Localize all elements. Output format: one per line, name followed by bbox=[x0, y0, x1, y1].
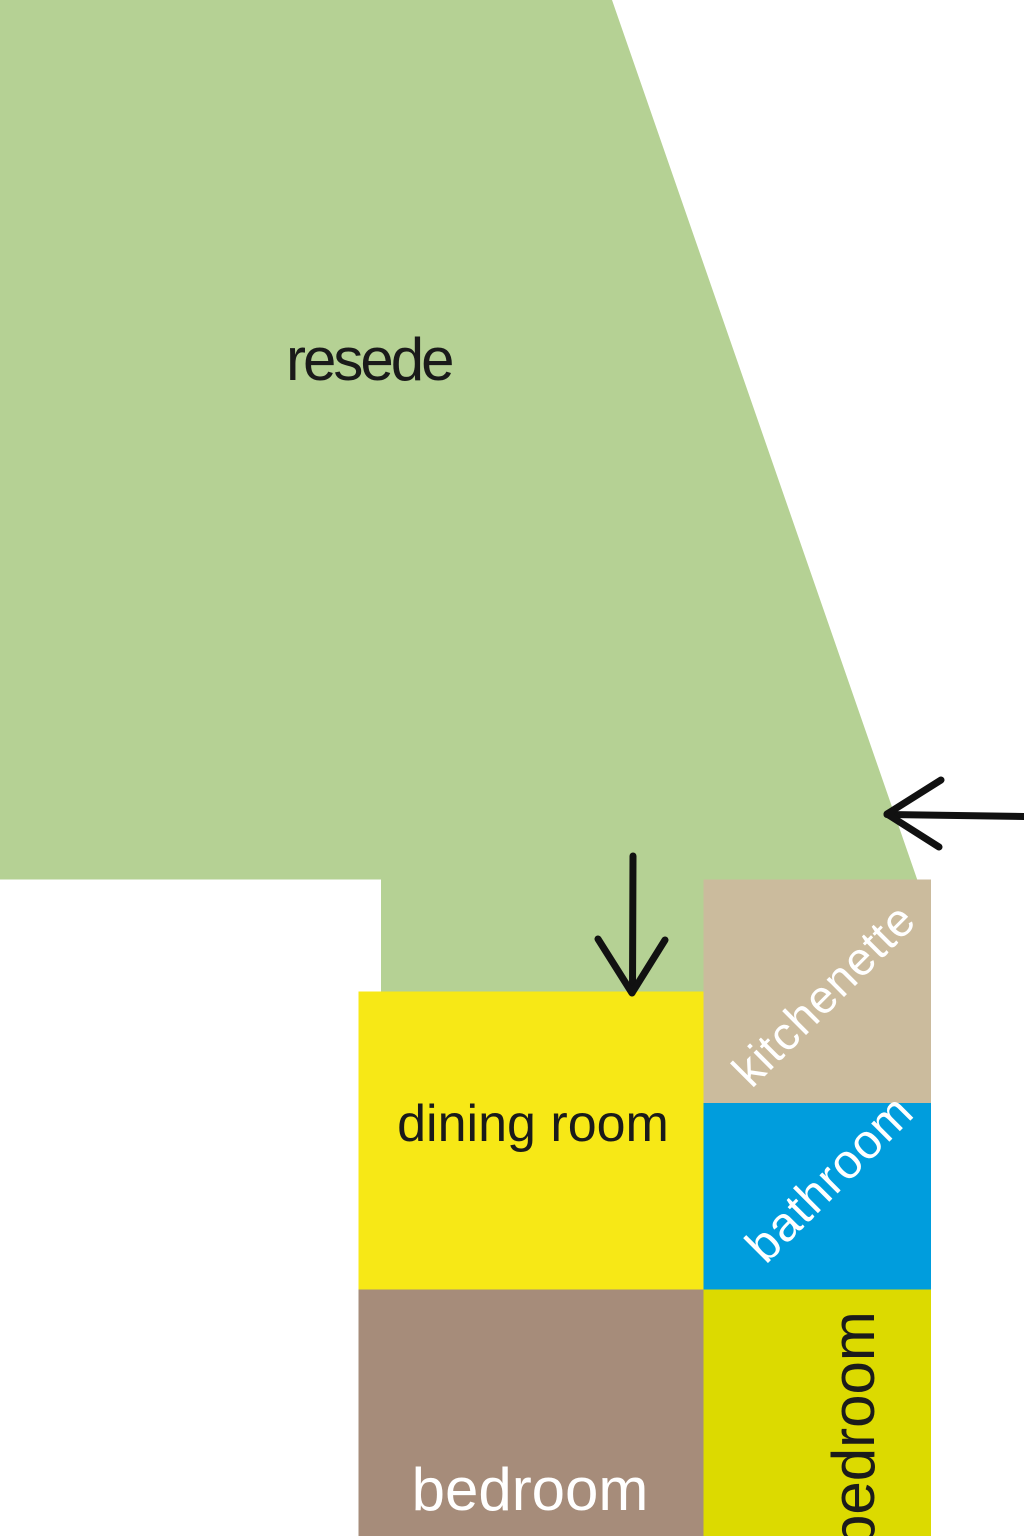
svg-text:bedroom: bedroom bbox=[820, 1311, 887, 1536]
svg-text:resede: resede bbox=[286, 326, 452, 393]
svg-text:bedroom: bedroom bbox=[412, 1456, 649, 1523]
svg-text:dining room: dining room bbox=[397, 1095, 669, 1153]
